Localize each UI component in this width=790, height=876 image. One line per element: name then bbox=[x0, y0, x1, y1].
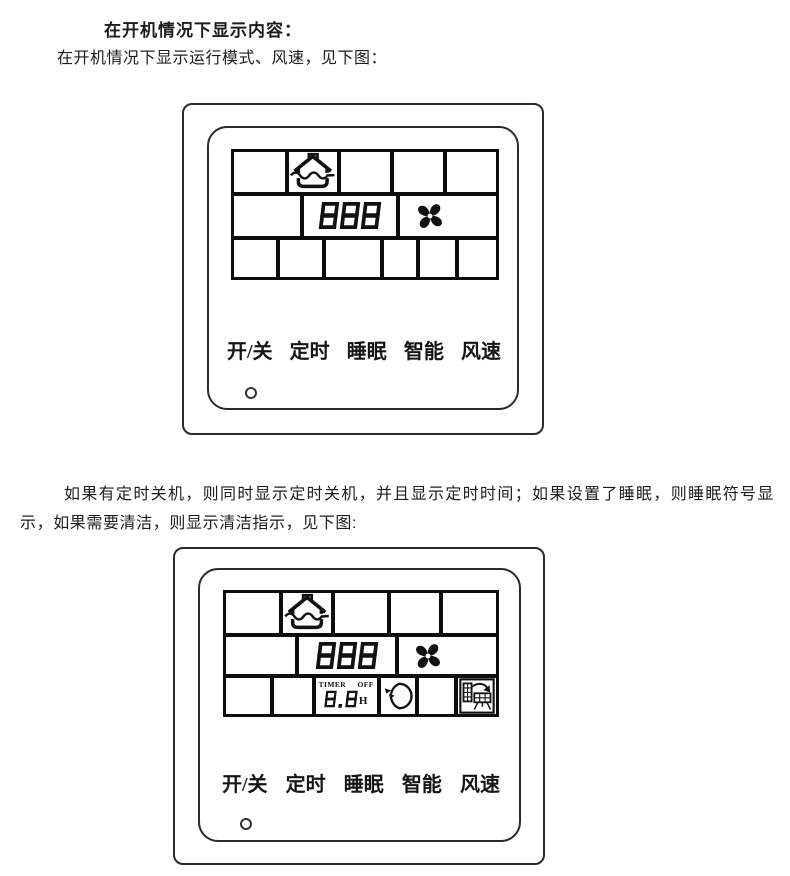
button-timer: 定时 bbox=[286, 768, 326, 797]
seven-segment-temperature bbox=[315, 641, 379, 670]
button-power: 开/关 bbox=[227, 335, 273, 364]
lcd-cell-fan bbox=[400, 196, 497, 236]
lcd-cell-blank bbox=[391, 593, 439, 633]
power-indicator-led bbox=[240, 818, 252, 830]
section-heading: 在开机情况下显示内容： bbox=[104, 16, 302, 41]
lcd-cell-blank bbox=[419, 678, 454, 714]
lcd-cell-mode bbox=[283, 593, 331, 633]
lcd-cell-clean bbox=[458, 678, 496, 714]
lcd-row-status: TIMER OFF H bbox=[226, 678, 496, 714]
panel-face: 开/关 定时 睡眠 智能 风速 bbox=[207, 126, 519, 410]
lcd-row-temp-fan bbox=[234, 196, 496, 236]
lcd-cell-blank bbox=[443, 593, 496, 633]
button-label-row: 开/关 定时 睡眠 智能 风速 bbox=[227, 335, 501, 364]
lcd-cell-blank bbox=[280, 240, 323, 277]
panel-face: TIMER OFF H bbox=[198, 568, 521, 842]
lcd-row-status bbox=[234, 240, 496, 277]
house-ventilation-mode-icon bbox=[283, 593, 331, 633]
lcd-cell-blank bbox=[384, 240, 416, 277]
lcd-cell-blank bbox=[274, 678, 312, 714]
power-indicator-led bbox=[245, 387, 257, 399]
lcd-cell-temperature bbox=[304, 196, 396, 236]
lcd-cell-blank bbox=[459, 240, 496, 277]
lcd-display: TIMER OFF H bbox=[223, 590, 499, 717]
lcd-cell-blank bbox=[226, 593, 279, 633]
lcd-cell-temperature bbox=[299, 637, 394, 674]
lcd-cell-blank bbox=[234, 196, 300, 236]
intro-text: 在开机情况下显示运行模式、风速，见下图： bbox=[57, 44, 387, 68]
lcd-cell-blank bbox=[234, 240, 276, 277]
house-ventilation-mode-icon bbox=[289, 152, 336, 192]
thermostat-panel-timer: TIMER OFF H bbox=[173, 547, 545, 865]
sleep-moon-icon bbox=[382, 682, 413, 711]
seven-segment-timer-hours bbox=[324, 690, 358, 708]
body-paragraph: 如果有定时关机，则同时显示定时关机，并且显示定时时间；如果设置了睡眠，则睡眠符号… bbox=[20, 480, 774, 538]
seven-segment-temperature bbox=[318, 201, 382, 230]
button-label-row: 开/关 定时 睡眠 智能 风速 bbox=[222, 768, 500, 797]
lcd-cell-blank bbox=[226, 637, 295, 674]
fan-speed-icon bbox=[413, 641, 443, 671]
timer-labels: TIMER OFF bbox=[319, 680, 374, 689]
lcd-cell-blank bbox=[326, 240, 379, 277]
timer-label: TIMER bbox=[319, 680, 346, 689]
lcd-display bbox=[231, 149, 499, 280]
timer-value: H bbox=[325, 690, 368, 708]
lcd-cell-blank bbox=[226, 678, 270, 714]
lcd-cell-mode bbox=[289, 152, 336, 192]
clean-filter-icon bbox=[459, 678, 495, 714]
lcd-cell-timer: TIMER OFF H bbox=[316, 678, 377, 714]
lcd-cell-blank bbox=[341, 152, 390, 192]
thermostat-panel-power-on: 开/关 定时 睡眠 智能 风速 bbox=[182, 103, 544, 435]
button-fanspeed: 风速 bbox=[461, 335, 501, 364]
lcd-cell-sleep bbox=[381, 678, 415, 714]
lcd-cell-blank bbox=[234, 152, 285, 192]
lcd-cell-blank bbox=[447, 152, 496, 192]
lcd-cell-blank bbox=[394, 152, 442, 192]
lcd-row-modes bbox=[226, 593, 496, 633]
timer-off-label: OFF bbox=[358, 680, 374, 689]
fan-speed-icon bbox=[415, 201, 445, 231]
button-smart: 智能 bbox=[402, 768, 442, 797]
button-power: 开/关 bbox=[222, 768, 268, 797]
button-sleep: 睡眠 bbox=[347, 335, 387, 364]
lcd-cell-blank bbox=[335, 593, 387, 633]
timer-hours-unit: H bbox=[359, 696, 368, 707]
button-smart: 智能 bbox=[404, 335, 444, 364]
lcd-row-temp-fan bbox=[226, 637, 496, 674]
button-fanspeed: 风速 bbox=[460, 768, 500, 797]
lcd-cell-fan bbox=[399, 637, 496, 674]
button-sleep: 睡眠 bbox=[344, 768, 384, 797]
lcd-row-modes bbox=[234, 152, 496, 192]
lcd-cell-blank bbox=[420, 240, 455, 277]
button-timer: 定时 bbox=[290, 335, 330, 364]
